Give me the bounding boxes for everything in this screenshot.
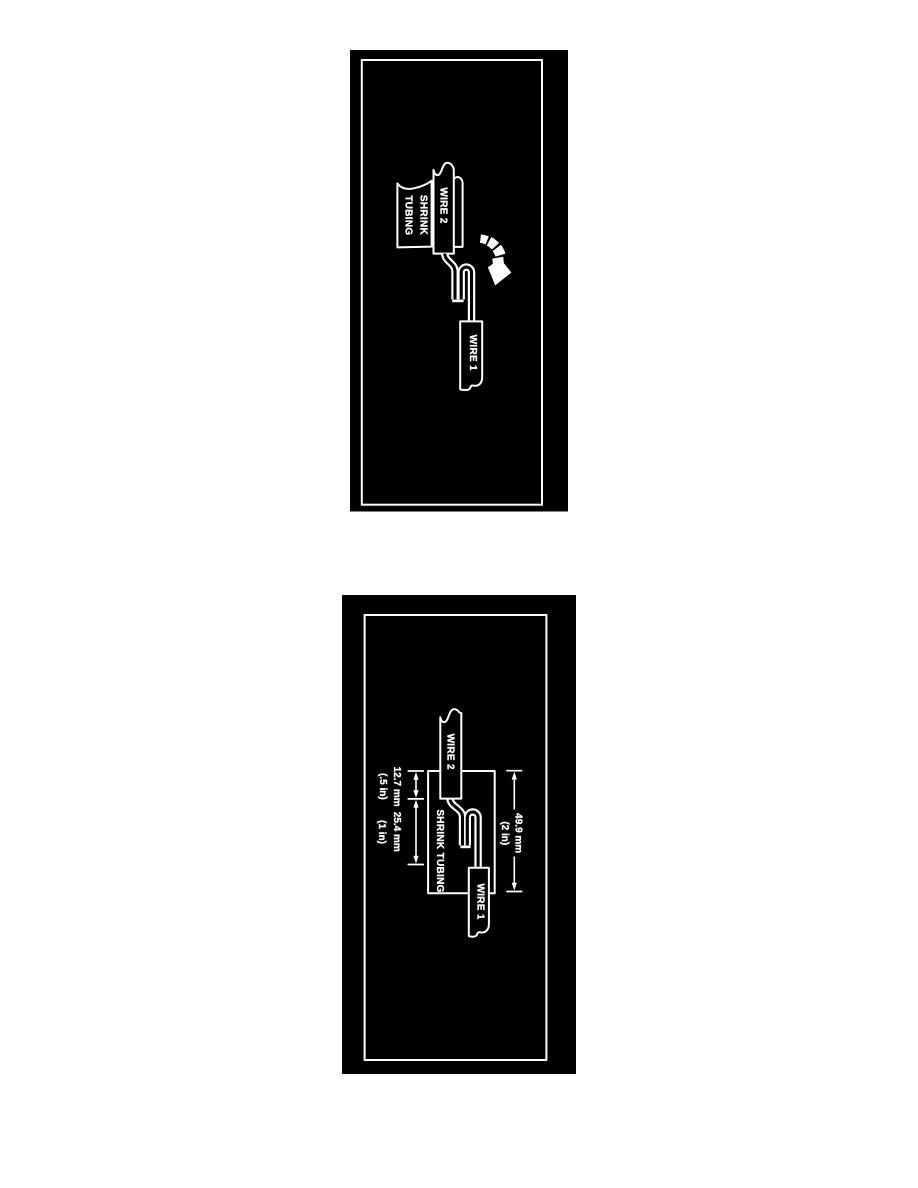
svg-text:WIRE 1: WIRE 1: [475, 883, 486, 919]
svg-text:WIRE 2: WIRE 2: [444, 734, 455, 770]
svg-text:49.9 mm: 49.9 mm: [512, 813, 523, 853]
svg-text:12.7 mm: 12.7 mm: [391, 767, 402, 807]
svg-text:TUBING: TUBING: [403, 195, 414, 235]
svg-text:25.4 mm: 25.4 mm: [391, 812, 402, 852]
svg-text:WIRE 1: WIRE 1: [467, 335, 478, 371]
svg-text:(.5 in): (.5 in): [377, 773, 388, 800]
svg-text:SHRINK TUBING: SHRINK TUBING: [434, 809, 445, 892]
svg-text:SHRINK: SHRINK: [418, 195, 429, 236]
svg-text:(1 in): (1 in): [376, 820, 387, 844]
svg-text:WIRE 2: WIRE 2: [438, 187, 449, 223]
svg-text:(2 in): (2 in): [499, 821, 510, 845]
